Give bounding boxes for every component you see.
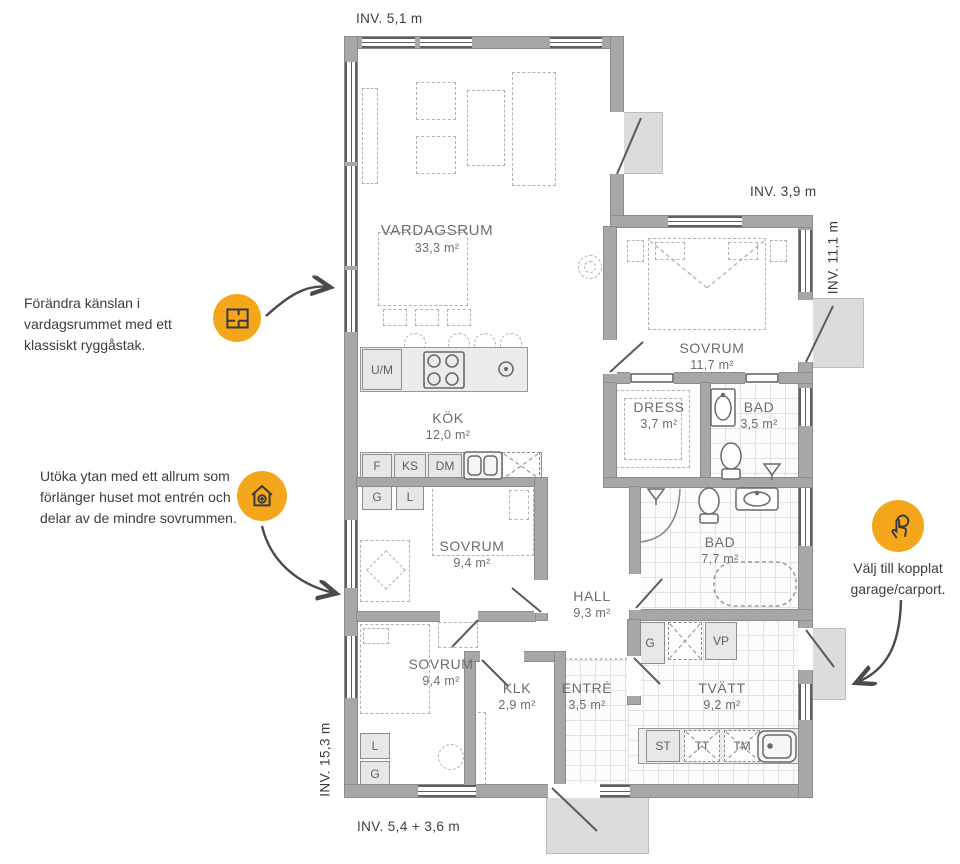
dimension-left: INV. 15,3 m — [318, 705, 333, 815]
room-area: 3,5 m² — [740, 417, 777, 433]
tap-select-icon — [884, 512, 913, 541]
room-label-sovrum-2: SOVRUM 9,4 m² — [439, 538, 504, 571]
porch-entrance — [546, 790, 649, 854]
furniture-side-table — [438, 622, 478, 648]
door-opening — [548, 784, 600, 798]
room-area: 2,9 m² — [498, 698, 535, 714]
shaft-optional — [668, 622, 702, 660]
room-name: SOVRUM — [439, 538, 504, 556]
furniture-tv-bench — [362, 88, 378, 184]
window — [668, 216, 742, 227]
room-name: TVÄTT — [698, 680, 745, 698]
room-name: KÖK — [426, 410, 470, 428]
door-opening — [798, 300, 813, 362]
window — [799, 488, 812, 546]
appliance-cabinet-g: G — [360, 761, 390, 787]
window — [362, 37, 415, 48]
furniture-stool — [438, 744, 464, 770]
window — [345, 636, 357, 698]
room-area: 33,3 m² — [381, 241, 493, 257]
wall — [357, 478, 547, 486]
room-label-bad-large: BAD 7,7 m² — [701, 534, 738, 567]
wall — [630, 610, 812, 620]
door-opening — [629, 574, 641, 610]
wall — [604, 478, 812, 487]
appliance-freezer: KS — [394, 454, 426, 478]
dimension-right: INV. 11,1 m — [826, 204, 841, 312]
room-name: KLK — [498, 680, 535, 698]
kitchen-optional-cabinet — [502, 452, 540, 480]
garage-hotspot[interactable] — [872, 500, 924, 552]
wall — [555, 652, 565, 797]
porch-living — [623, 112, 663, 174]
furniture-chair — [415, 309, 439, 326]
appliance-cabinet-l: L — [360, 733, 390, 759]
furniture-sofa — [512, 72, 556, 186]
tile-floor-entre — [565, 660, 628, 785]
door-opening — [440, 611, 478, 622]
door-opening — [603, 340, 617, 374]
room-label-klk: KLK 2,9 m² — [498, 680, 535, 713]
house-plus-icon — [248, 482, 276, 510]
window — [799, 388, 812, 426]
room-name: BAD — [701, 534, 738, 552]
appliance-dryer: TT — [684, 730, 720, 762]
appliance-washer: TM — [724, 730, 760, 762]
appliance-cabinet-l: L — [396, 484, 424, 510]
door-opening — [798, 628, 813, 670]
room-area: 7,7 m² — [701, 552, 738, 568]
room-name: DRESS — [633, 399, 684, 417]
ridge-hotspot[interactable] — [213, 294, 261, 342]
room-area: 9,4 m² — [408, 674, 473, 690]
furniture-pillow — [363, 628, 389, 644]
room-area: 9,2 m² — [698, 698, 745, 714]
room-area: 3,7 m² — [633, 417, 684, 433]
window — [799, 684, 812, 720]
window — [345, 520, 357, 588]
window — [799, 230, 812, 292]
floorplan-icon — [224, 305, 251, 332]
room-label-dress: DRESS 3,7 m² — [633, 399, 684, 432]
window — [600, 785, 630, 797]
chimney-symbol-inner — [584, 261, 596, 273]
furniture-pillow — [509, 490, 529, 520]
room-label-vardagsrum: VARDAGSRUM 33,3 m² — [381, 222, 493, 256]
window — [345, 62, 357, 162]
room-label-sovrum-1: SOVRUM 11,7 m² — [679, 340, 744, 373]
window — [345, 270, 357, 332]
dimension-bottom: INV. 5,4 + 3,6 m — [357, 819, 460, 834]
window — [345, 166, 357, 266]
annotation-allrum-text: Utöka ytan med ett allrum som förlänger … — [40, 466, 246, 529]
dimension-top-right: INV. 3,9 m — [750, 184, 817, 199]
appliance-oven-micro: U/M — [362, 349, 402, 390]
appliance-dishwasher: DM — [428, 454, 462, 478]
room-label-hall: HALL 9,3 m² — [573, 588, 610, 621]
room-area: 3,5 m² — [562, 698, 612, 714]
door-opening — [534, 580, 548, 613]
furniture-nightstand — [627, 240, 644, 262]
door-opening — [745, 372, 779, 384]
door-opening — [627, 656, 641, 696]
room-label-bad-small: BAD 3,5 m² — [740, 399, 777, 432]
room-name: SOVRUM — [408, 656, 473, 674]
room-name: SOVRUM — [679, 340, 744, 358]
furniture-armchair — [416, 136, 456, 174]
room-name: ENTRÉ — [562, 680, 612, 698]
furniture-coffee-table — [467, 90, 505, 166]
room-area: 9,4 m² — [439, 556, 504, 572]
room-name: BAD — [740, 399, 777, 417]
appliance-drying-cabinet: ST — [646, 730, 680, 762]
furniture-pillow — [655, 242, 685, 260]
room-area: 9,3 m² — [573, 606, 610, 622]
room-name: HALL — [573, 588, 610, 606]
room-label-tvatt: TVÄTT 9,2 m² — [698, 680, 745, 713]
room-label-kok: KÖK 12,0 m² — [426, 410, 470, 443]
window — [550, 37, 602, 48]
dimension-top: INV. 5,1 m — [356, 11, 423, 26]
appliance-fridge: F — [362, 454, 392, 478]
window — [418, 785, 476, 797]
annotation-ridge-text: Förändra känslan i vardagsrummet med ett… — [24, 293, 222, 356]
appliance-heat-pump: VP — [705, 622, 737, 660]
furniture-pillow — [728, 242, 758, 260]
window — [420, 37, 472, 48]
room-label-sovrum-3: SOVRUM 9,4 m² — [408, 656, 473, 689]
door-opening — [610, 112, 624, 174]
room-area: 12,0 m² — [426, 428, 470, 444]
door-opening — [480, 651, 524, 662]
allrum-hotspot[interactable] — [237, 471, 287, 521]
furniture-chair — [383, 309, 407, 326]
porch-tvatt — [812, 628, 846, 700]
annotation-garage-text: Välj till kopplat garage/carport. — [838, 558, 958, 600]
furniture-chair — [447, 309, 471, 326]
appliance-cabinet-g: G — [362, 484, 392, 510]
wall — [701, 383, 710, 480]
floorplan-page: U/M F KS DM G L L G G VP ST TT TM — [0, 0, 960, 864]
room-area: 11,7 m² — [679, 358, 744, 374]
door-opening — [630, 372, 674, 384]
furniture-nightstand — [770, 240, 787, 262]
wall — [604, 383, 616, 480]
furniture-armchair — [416, 82, 456, 120]
room-label-entre: ENTRÉ 3,5 m² — [562, 680, 612, 713]
room-name: VARDAGSRUM — [381, 222, 493, 241]
